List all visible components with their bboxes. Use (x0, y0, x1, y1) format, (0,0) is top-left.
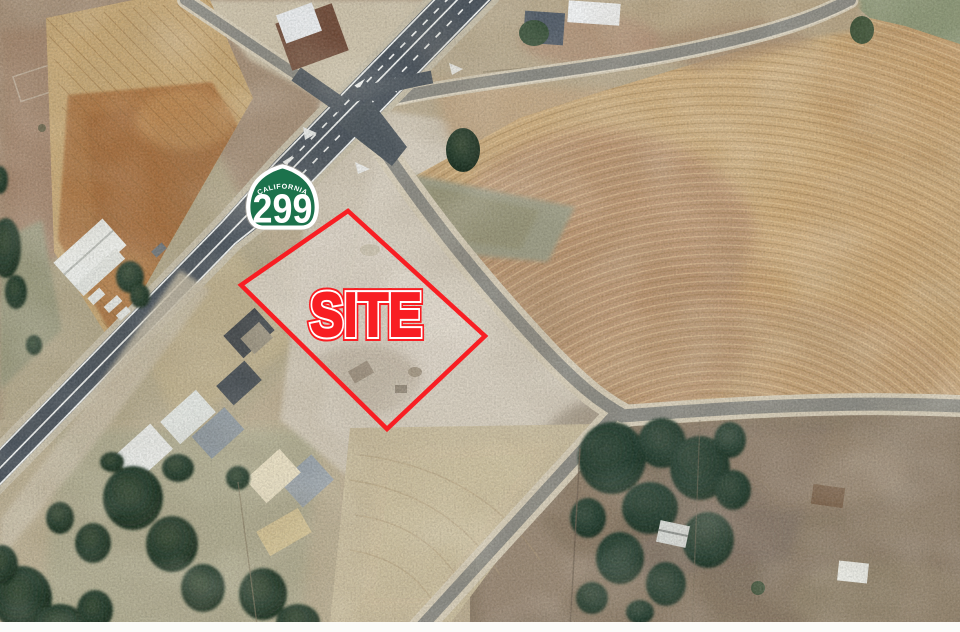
svg-text:299: 299 (253, 185, 313, 231)
svg-text:SITE: SITE (310, 281, 422, 350)
